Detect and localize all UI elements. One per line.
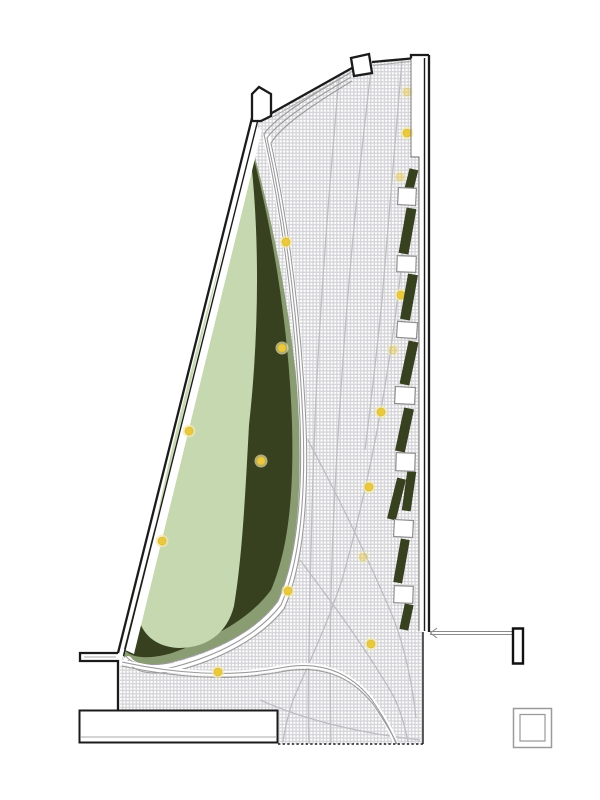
tree-dot: [363, 481, 376, 494]
planter-deck: [397, 256, 417, 273]
tree-dot: [401, 127, 414, 140]
tree-dot-pale: [387, 344, 400, 357]
tree-dot: [375, 406, 388, 419]
site-plan-svg: [0, 0, 600, 800]
annex-building: [80, 711, 278, 743]
tree-dot: [282, 585, 295, 598]
tree-dot-pale: [394, 171, 407, 184]
tree-icon: [389, 346, 397, 354]
column-detail-inner: [520, 715, 545, 742]
door-marker: [513, 629, 523, 664]
tree-icon: [282, 238, 290, 246]
tree-icon: [359, 553, 367, 561]
planter-deck: [395, 386, 416, 404]
planter-deck: [394, 520, 414, 538]
tree-dot: [156, 535, 169, 548]
tree-icon: [403, 129, 411, 137]
tree-icon: [185, 427, 193, 435]
tree-icon: [158, 537, 166, 545]
tree-icon: [377, 408, 385, 416]
tree-dot: [276, 342, 289, 355]
tree-dot: [255, 455, 268, 468]
tree-dot-pale: [357, 551, 370, 564]
tree-dot: [365, 638, 378, 651]
tree-dot-pale: [401, 86, 414, 99]
apex-notch: [252, 87, 271, 121]
tree-dot: [183, 425, 196, 438]
tree-icon: [278, 344, 286, 352]
tree-icon: [257, 457, 265, 465]
tree-dot: [212, 666, 225, 679]
right-corner-step: [411, 55, 429, 59]
tree-icon: [214, 668, 222, 676]
planter-deck: [394, 586, 414, 604]
tree-dot: [280, 236, 293, 249]
planter-deck: [396, 453, 416, 472]
connector-arrow: [431, 628, 438, 638]
top-notch: [351, 54, 372, 76]
tree-icon: [403, 88, 411, 96]
ledge-step: [80, 653, 118, 710]
architectural-site-plan: [0, 0, 600, 800]
tree-icon: [365, 483, 373, 491]
planter-deck: [396, 321, 417, 338]
tree-icon: [284, 587, 292, 595]
tree-icon: [367, 640, 375, 648]
planter-deck: [398, 188, 417, 206]
tree-icon: [396, 173, 404, 181]
